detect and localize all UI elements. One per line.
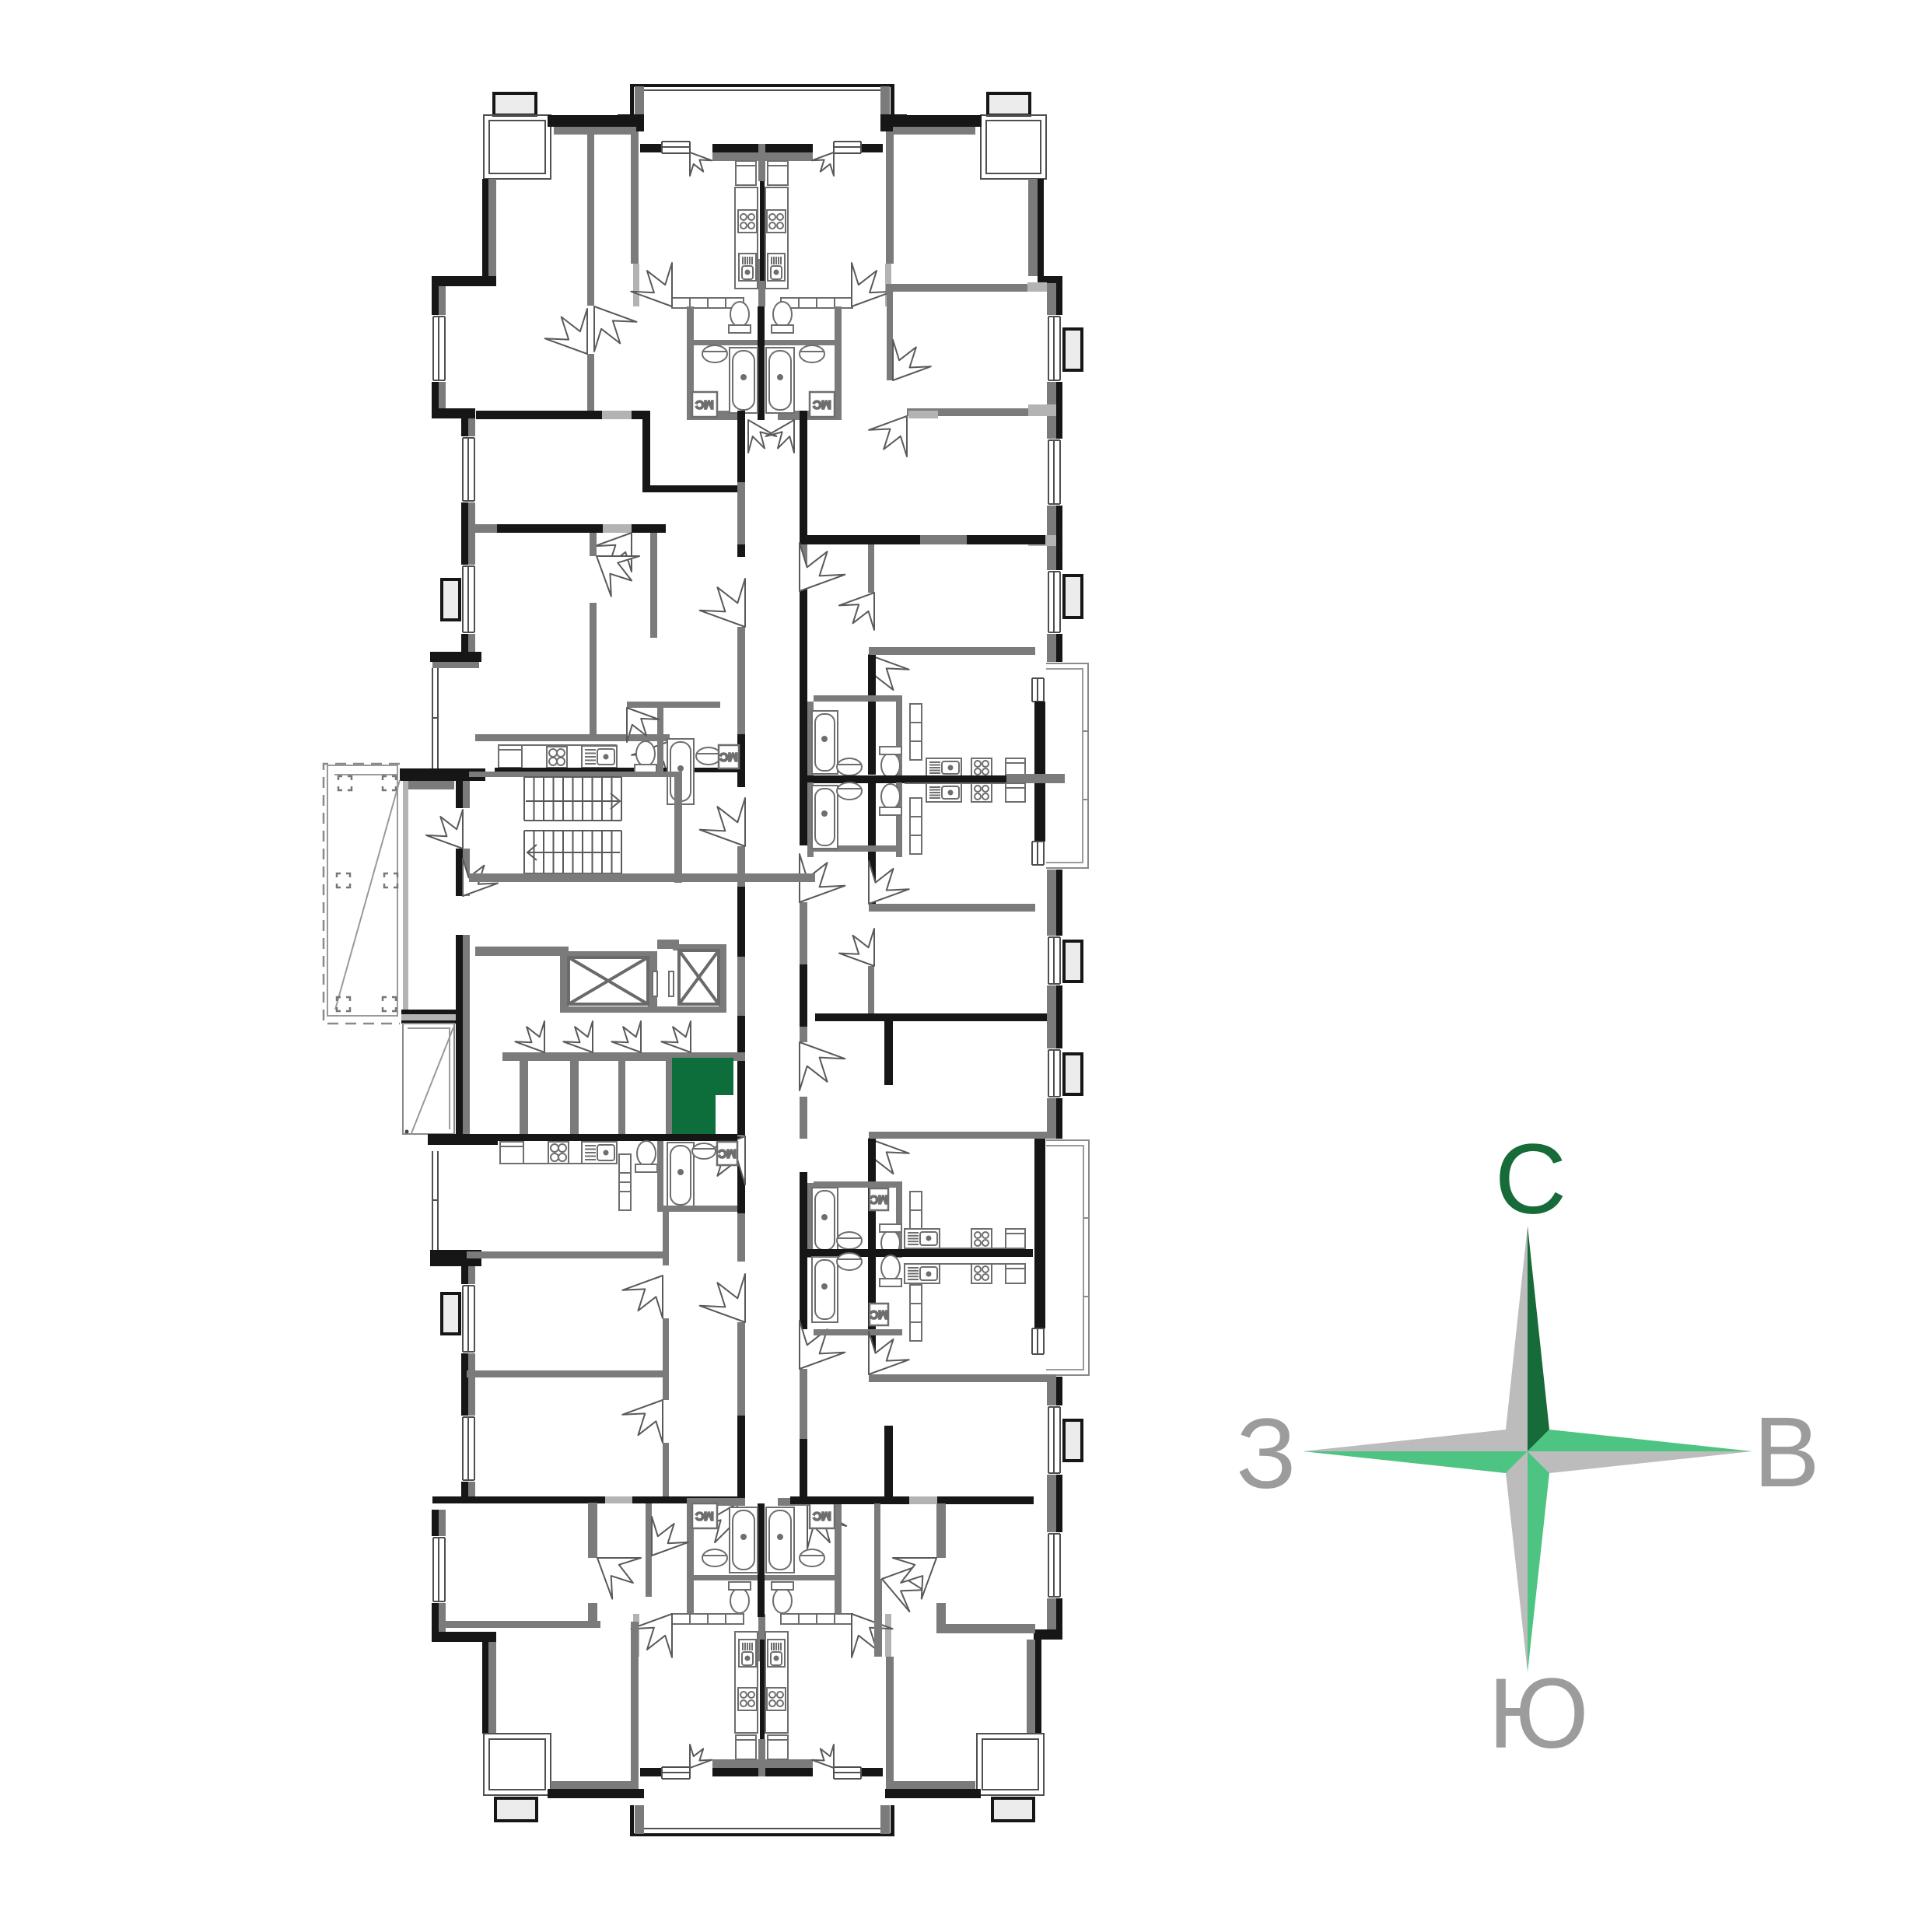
svg-text:MC: MC — [870, 1193, 887, 1206]
svg-text:MC: MC — [813, 1510, 831, 1523]
svg-text:MC: MC — [718, 1147, 736, 1160]
svg-text:З: З — [1236, 1398, 1296, 1510]
svg-text:MC: MC — [695, 398, 713, 411]
svg-text:С: С — [1495, 1124, 1566, 1235]
svg-text:Ю: Ю — [1488, 1658, 1588, 1769]
svg-text:В: В — [1753, 1397, 1819, 1508]
svg-text:MC: MC — [813, 398, 831, 411]
svg-text:MC: MC — [719, 751, 737, 764]
svg-text:MC: MC — [870, 1308, 887, 1321]
svg-text:MC: MC — [695, 1510, 713, 1523]
